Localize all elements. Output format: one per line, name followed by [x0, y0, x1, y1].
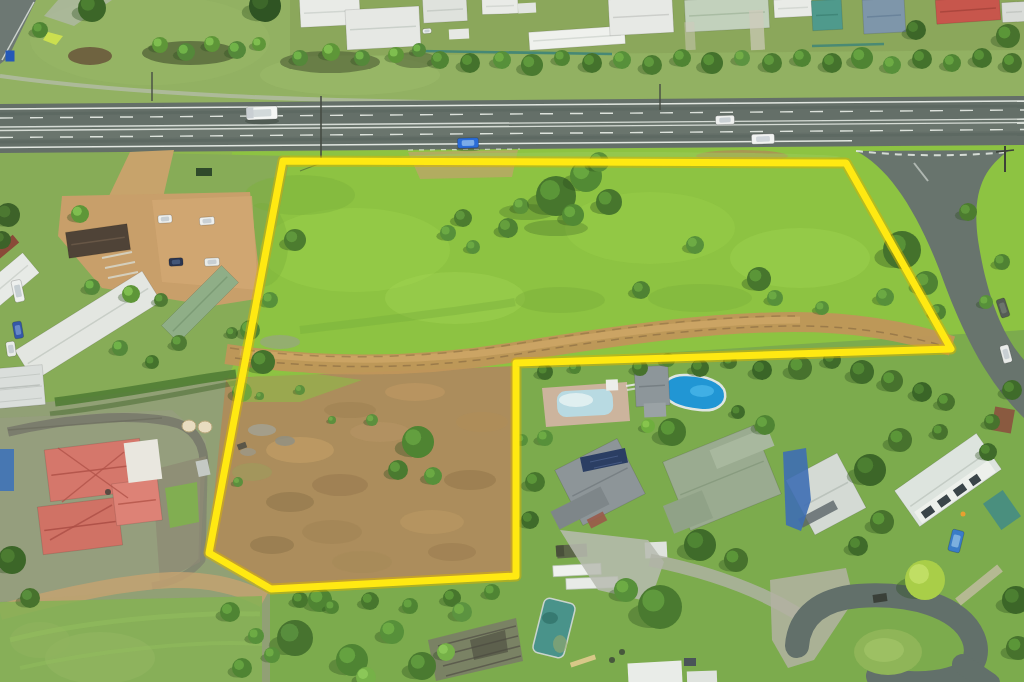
- ground-patch: [444, 470, 496, 490]
- tree-highlight: [736, 52, 744, 60]
- tree-highlight: [675, 51, 684, 60]
- house-roof: [774, 0, 813, 18]
- tree-highlight: [222, 604, 232, 614]
- play-structure: [0, 449, 14, 491]
- ground-patch: [456, 412, 508, 432]
- house-roof: [608, 0, 674, 36]
- tree-highlight: [523, 513, 532, 522]
- driveway: [684, 22, 695, 50]
- pot: [609, 657, 615, 663]
- palm-tree-highlight: [206, 38, 214, 46]
- tree-highlight: [433, 53, 442, 62]
- tree-highlight: [615, 53, 624, 62]
- tree-highlight: [998, 26, 1010, 38]
- hedge-tree-highlight: [404, 600, 412, 608]
- tree-highlight: [515, 200, 523, 208]
- tree-highlight: [250, 630, 258, 638]
- house-roof-blue: [862, 0, 906, 34]
- palm-tree-highlight: [294, 52, 302, 60]
- water-tank: [198, 421, 212, 433]
- tree-highlight: [405, 429, 421, 445]
- tree-highlight: [790, 358, 802, 370]
- tree-highlight: [644, 57, 654, 67]
- dark-equipment: [684, 658, 696, 666]
- umbrella: [606, 379, 619, 391]
- tree-highlight: [634, 283, 643, 292]
- shrub-highlight: [329, 417, 333, 421]
- ground-patch: [312, 474, 368, 496]
- tree-highlight: [914, 384, 924, 394]
- corrugated-roof: [0, 365, 46, 410]
- tree-highlight: [454, 604, 464, 614]
- tree-highlight: [980, 296, 987, 303]
- parked-car: [422, 28, 431, 33]
- palm-tree-highlight: [154, 39, 162, 47]
- bush-highlight: [227, 328, 233, 334]
- tree-highlight: [934, 426, 942, 434]
- driveway: [749, 10, 765, 51]
- tree-highlight: [527, 474, 537, 484]
- hedge-tree-highlight: [486, 586, 494, 594]
- palm-tree-highlight: [688, 238, 697, 247]
- banana-plant-highlight: [358, 669, 368, 679]
- bush-highlight: [155, 294, 162, 301]
- tree-highlight: [642, 589, 664, 611]
- rocks: [275, 436, 295, 446]
- tree-highlight: [339, 647, 355, 663]
- house-roof-red: [935, 0, 1001, 24]
- tree-highlight: [264, 294, 272, 302]
- palm-tree-highlight: [230, 43, 239, 52]
- bush-highlight: [146, 356, 153, 363]
- tree-highlight: [442, 227, 450, 235]
- field-dark: [648, 284, 752, 312]
- bush-highlight: [234, 660, 244, 670]
- white-ute: [751, 134, 774, 145]
- shrub-highlight: [257, 393, 261, 397]
- tree-highlight: [769, 292, 777, 300]
- field-dark: [515, 287, 605, 313]
- ground-patch: [350, 422, 410, 442]
- house-roof: [422, 0, 467, 23]
- tree-highlight: [853, 49, 864, 60]
- pot: [619, 649, 625, 655]
- tree-highlight: [456, 211, 465, 220]
- palm-tree-highlight: [390, 49, 398, 57]
- bottom-roof: [627, 661, 682, 682]
- rocks: [260, 335, 300, 349]
- tree-highlight: [1, 549, 15, 563]
- hedge-tree-highlight: [445, 591, 454, 600]
- white-car: [5, 341, 16, 357]
- tree-highlight: [556, 52, 564, 60]
- white-tarp: [124, 439, 163, 483]
- blue-car: [457, 138, 478, 149]
- hedge-tree-highlight: [326, 601, 333, 608]
- palm-tree-highlight: [539, 432, 547, 440]
- island-grass-light: [864, 638, 904, 662]
- tree-highlight: [878, 290, 887, 299]
- tree-highlight: [850, 538, 860, 548]
- tree-highlight: [390, 462, 400, 472]
- tree-highlight: [914, 51, 924, 61]
- tree-highlight: [661, 421, 675, 435]
- tree-highlight: [749, 269, 761, 281]
- tree-highlight: [981, 445, 990, 454]
- parked-car-dark: [169, 258, 183, 267]
- roof-vent: [105, 489, 111, 495]
- orange-light: [961, 512, 966, 517]
- tree-highlight: [945, 56, 954, 65]
- tree-highlight: [1004, 382, 1014, 392]
- red-house-roof: [112, 478, 163, 525]
- water-tank: [182, 420, 196, 432]
- tree-highlight: [908, 22, 918, 32]
- tree-highlight: [961, 205, 970, 214]
- palm-tree-highlight: [86, 281, 94, 289]
- tree-highlight: [1008, 638, 1020, 650]
- palm-tree-highlight: [179, 45, 188, 54]
- tree-highlight: [687, 532, 703, 548]
- rocks: [248, 424, 276, 436]
- palm-tree-highlight: [642, 420, 649, 427]
- bush-highlight: [173, 337, 181, 345]
- ground-patch: [385, 383, 445, 401]
- shrub-highlight: [234, 478, 239, 483]
- tree-highlight: [22, 590, 32, 600]
- tree-highlight: [1005, 589, 1019, 603]
- bush-highlight: [266, 649, 274, 657]
- palm-tree-highlight: [73, 207, 82, 216]
- ground-patch: [266, 492, 314, 512]
- rocks: [240, 448, 256, 456]
- shrub-highlight: [296, 386, 301, 391]
- house-roof: [345, 6, 421, 50]
- tree-highlight: [754, 362, 764, 372]
- sign-board: [196, 168, 212, 176]
- pool-house-ext: [644, 402, 667, 417]
- tree-highlight: [852, 362, 864, 374]
- aerial-photo-stage: [0, 0, 1024, 682]
- motel-lot-light: [152, 196, 258, 290]
- house-roof: [482, 0, 519, 15]
- tree-highlight: [382, 622, 394, 634]
- hedge-tree-highlight: [294, 594, 302, 602]
- house-roof-teal: [811, 0, 843, 31]
- tree-highlight: [500, 220, 510, 230]
- tree-highlight: [996, 256, 1004, 264]
- tree-highlight: [523, 56, 534, 67]
- tree-highlight: [890, 430, 902, 442]
- tree-highlight: [939, 395, 948, 404]
- palm-tree-highlight: [413, 44, 420, 51]
- bottom-roof: [687, 670, 717, 682]
- tree-highlight: [816, 302, 823, 309]
- tree-highlight: [885, 58, 894, 67]
- tree-highlight: [757, 417, 767, 427]
- tree-highlight: [703, 54, 714, 65]
- tree-highlight: [34, 24, 42, 32]
- lawn-patch: [165, 482, 199, 528]
- pool-stain: [553, 635, 567, 653]
- ground-patch: [400, 510, 464, 534]
- dirt-patch: [68, 47, 112, 65]
- ground-patch: [332, 551, 392, 573]
- pool-stain: [542, 612, 558, 624]
- parked-car: [158, 215, 173, 224]
- tree-highlight: [857, 457, 873, 473]
- tree-highlight: [824, 55, 834, 65]
- tree-highlight: [540, 180, 560, 200]
- ground-patch: [428, 543, 476, 561]
- blue-bin: [6, 51, 15, 62]
- truck-cab: [556, 545, 565, 557]
- aerial-photo: [0, 0, 1024, 682]
- bush-highlight: [732, 406, 739, 413]
- tree-highlight: [584, 55, 594, 65]
- ground-patch: [302, 520, 362, 544]
- tree-highlight: [281, 624, 299, 642]
- house-roof: [1001, 1, 1024, 22]
- palm-tree-highlight: [253, 38, 260, 45]
- tree-highlight: [883, 372, 894, 383]
- palm-tree-highlight: [114, 342, 122, 350]
- tree-highlight: [253, 352, 265, 364]
- hedge-tree-highlight: [363, 594, 372, 603]
- shrub-highlight: [367, 415, 373, 421]
- palm-tree-highlight: [356, 52, 364, 60]
- palm-tree-highlight: [324, 45, 333, 54]
- tree-highlight: [286, 231, 297, 242]
- white-car: [715, 115, 734, 125]
- truck-cab: [246, 107, 253, 118]
- small-roof: [449, 28, 469, 39]
- tree-highlight: [764, 55, 774, 65]
- tree-highlight: [616, 580, 628, 592]
- chartreuse-tree-highlight: [909, 564, 929, 584]
- parked-car: [199, 216, 215, 225]
- tree-highlight: [726, 550, 738, 562]
- tree-highlight: [467, 241, 474, 248]
- tree-highlight: [462, 55, 472, 65]
- parked-ute: [204, 258, 219, 267]
- field-light: [565, 192, 735, 264]
- tree-highlight: [599, 192, 612, 205]
- palm-tree-highlight: [124, 287, 133, 296]
- tree-highlight: [495, 53, 504, 62]
- pool-glare: [559, 393, 593, 407]
- tree-highlight: [986, 416, 994, 424]
- tree-highlight: [411, 655, 425, 669]
- small-roof: [518, 3, 536, 14]
- tree-highlight: [426, 469, 435, 478]
- pool-glare: [690, 385, 714, 397]
- tree-highlight: [974, 50, 984, 60]
- tree-highlight: [872, 512, 884, 524]
- tree-highlight: [564, 206, 575, 217]
- ground-patch: [250, 536, 294, 554]
- banana-plant-highlight: [439, 645, 448, 654]
- tree-highlight: [1004, 55, 1014, 65]
- tree-highlight: [795, 51, 804, 60]
